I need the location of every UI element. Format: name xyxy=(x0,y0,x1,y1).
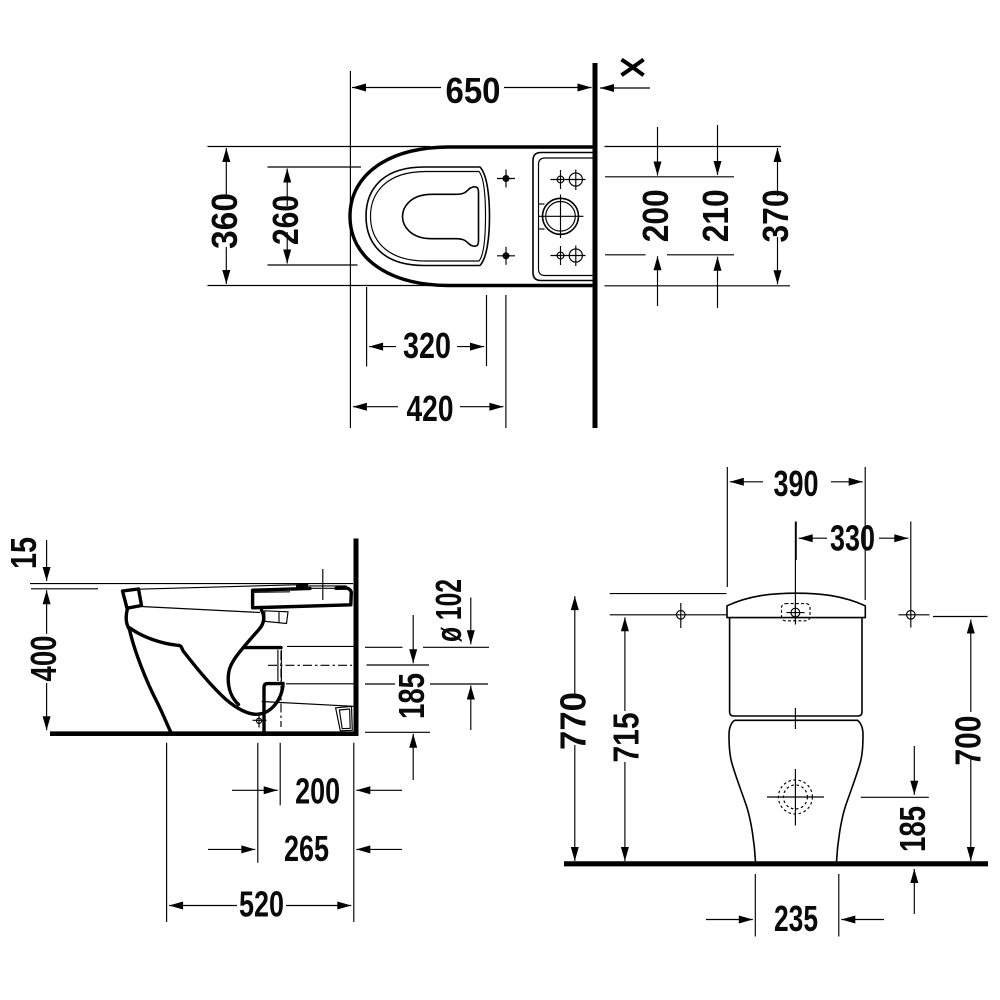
svg-text:420: 420 xyxy=(407,388,454,429)
svg-text:15: 15 xyxy=(3,537,44,569)
svg-text:650: 650 xyxy=(446,70,501,111)
svg-text:715: 715 xyxy=(606,713,647,763)
svg-text:770: 770 xyxy=(553,692,594,750)
svg-text:370: 370 xyxy=(755,190,796,243)
svg-text:360: 360 xyxy=(204,193,245,249)
svg-text:200: 200 xyxy=(635,189,676,242)
svg-text:400: 400 xyxy=(23,636,64,682)
svg-text:210: 210 xyxy=(695,189,736,242)
svg-text:ø 102: ø 102 xyxy=(428,579,469,642)
svg-text:330: 330 xyxy=(830,518,875,559)
svg-text:390: 390 xyxy=(774,463,819,504)
svg-text:700: 700 xyxy=(948,716,989,766)
svg-text:260: 260 xyxy=(265,195,306,245)
svg-text:235: 235 xyxy=(774,898,818,939)
svg-text:185: 185 xyxy=(892,806,933,852)
svg-text:200: 200 xyxy=(295,771,340,812)
svg-text:520: 520 xyxy=(239,884,284,925)
svg-text:320: 320 xyxy=(403,325,451,366)
svg-text:265: 265 xyxy=(284,828,329,869)
svg-text:185: 185 xyxy=(391,673,432,719)
